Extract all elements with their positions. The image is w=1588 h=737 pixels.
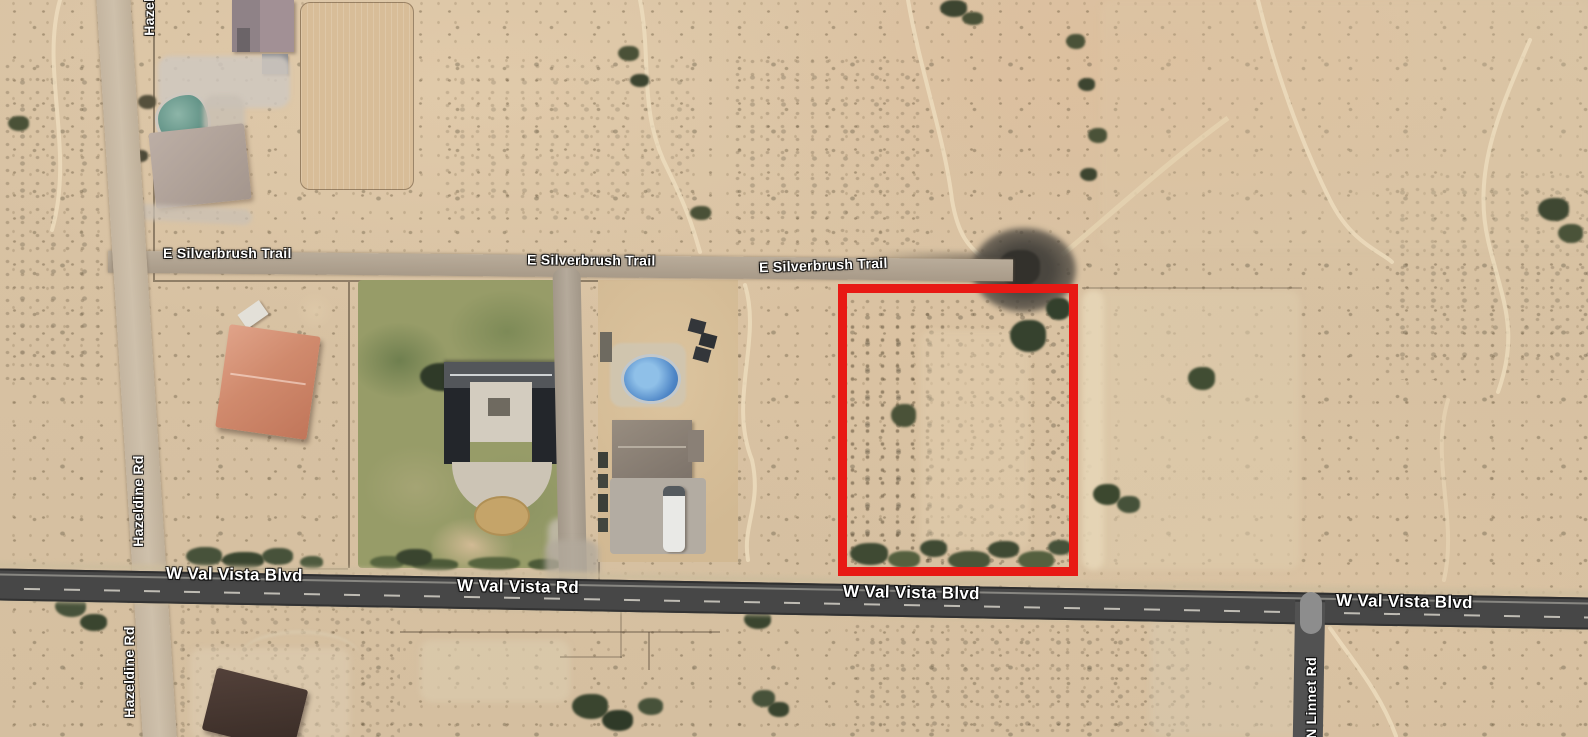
tree — [138, 95, 156, 109]
trailer — [598, 494, 608, 512]
parcel-boundary-highlight[interactable] — [838, 284, 1078, 576]
bush — [1558, 224, 1583, 243]
road-label-silverbrush-2: E Silverbrush Trail — [527, 251, 656, 268]
road-label-linnet: N Linnet Rd — [1303, 657, 1319, 737]
courtyard-feature — [488, 398, 510, 416]
bush — [618, 46, 639, 61]
road-label-valvista-1: W Val Vista Blvd — [166, 564, 303, 586]
road-label-valvista-3: W Val Vista Blvd — [843, 582, 980, 604]
garage-roof — [688, 430, 704, 462]
tree — [186, 547, 222, 566]
horse-arena — [300, 2, 414, 190]
road-label-hazeldine-middle: Hazeldine Rd — [130, 455, 146, 547]
road-label-silverbrush-1: E Silverbrush Trail — [163, 245, 292, 261]
trailer — [598, 452, 608, 468]
bush — [690, 206, 711, 220]
bush — [1080, 168, 1097, 181]
fence-line — [1082, 287, 1302, 289]
house-roof-orange — [215, 324, 321, 440]
house-roof — [148, 123, 251, 209]
tree — [768, 702, 789, 717]
rv-windshield — [663, 486, 685, 496]
bush — [8, 116, 29, 131]
tree — [1093, 484, 1120, 505]
gravel-court — [296, 292, 334, 330]
solar-roof-left-wing — [444, 388, 470, 464]
satellite-map[interactable]: E Silverbrush TrailE Silverbrush TrailE … — [0, 0, 1588, 737]
fence-line — [560, 656, 622, 658]
trailer — [598, 518, 608, 532]
fence-line — [348, 282, 350, 568]
roof-ridge — [618, 446, 686, 448]
garden-circle — [474, 496, 530, 536]
tree — [1117, 496, 1140, 513]
road-label-hazeldine-top: Hazeldine Rd — [141, 0, 157, 36]
house-roof — [612, 420, 692, 478]
roof-ridge — [450, 374, 552, 376]
road-label-valvista-4: W Val Vista Blvd — [1336, 591, 1473, 613]
bush — [1066, 34, 1085, 49]
tree — [396, 549, 432, 566]
trailer — [598, 474, 608, 488]
solar-roof-right-wing — [532, 388, 558, 464]
road-label-valvista-2: W Val Vista Rd — [457, 576, 579, 598]
tree — [1188, 367, 1215, 390]
building-roof-section — [237, 28, 250, 52]
bush — [630, 74, 649, 87]
tree — [602, 710, 633, 731]
hedge — [468, 557, 520, 570]
fence-line — [400, 631, 720, 633]
tree — [80, 614, 107, 631]
shed-roof — [600, 332, 612, 362]
bush — [1538, 198, 1569, 221]
road-label-hazeldine-bottom: Hazeldine Rd — [121, 626, 137, 718]
bush — [1078, 78, 1095, 91]
driveway — [610, 478, 706, 554]
tree — [262, 548, 293, 565]
bush — [1088, 128, 1107, 143]
road-linnet-cap — [1300, 592, 1322, 634]
swimming-pool — [621, 354, 681, 404]
bush — [962, 12, 983, 25]
driveway-loop — [240, 630, 360, 684]
tree — [638, 698, 663, 715]
fence-line — [648, 632, 650, 670]
